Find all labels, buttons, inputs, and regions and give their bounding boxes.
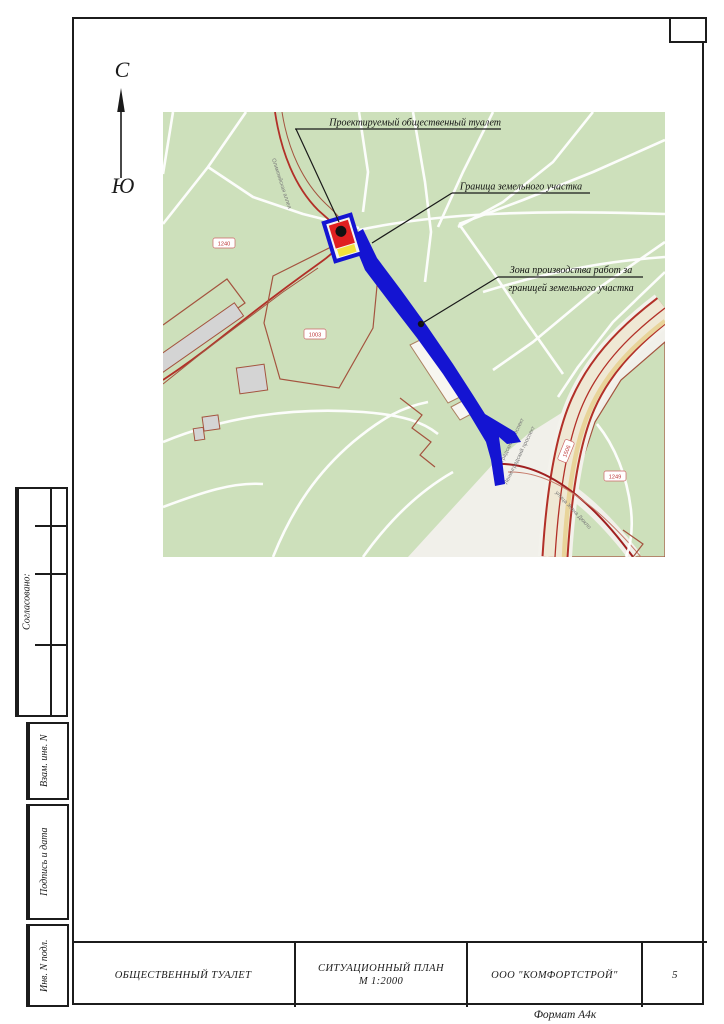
title-sheet-number: 5: [643, 943, 707, 1007]
sidebar-label-inv: Инв. N подл.: [28, 926, 59, 1005]
title-doc: СИТУАЦИОННЫЙ ПЛАН М 1:2000: [296, 943, 468, 1007]
svg-text:1003: 1003: [309, 333, 321, 339]
svg-text:1240: 1240: [218, 242, 230, 248]
north-arrow-icon: [105, 88, 137, 180]
parcel-label-1240: 1240: [213, 238, 235, 248]
sidebar-label-podpis: Подпись и дата: [28, 806, 59, 918]
sidebar-label-vzam: Взам. инв. N: [28, 724, 59, 798]
parcel-label-1003: 1003: [304, 329, 326, 339]
title-company: ООО "КОМФОРТСТРОЙ": [468, 943, 643, 1007]
sidebar-block-vzam: Взам. инв. N: [26, 722, 69, 800]
annotation-work-zone-1: Зона производства работ за: [510, 265, 632, 276]
sidebar-label-agreed: Согласовано:: [17, 489, 35, 715]
corner-box: [669, 17, 707, 43]
title-doc-scale: М 1:2000: [359, 975, 403, 988]
svg-text:1249: 1249: [609, 475, 621, 481]
sidebar-agreed-grid: [35, 489, 66, 715]
title-block: ОБЩЕСТВЕННЫЙ ТУАЛЕТ СИТУАЦИОННЫЙ ПЛАН М …: [72, 941, 707, 1007]
format-label: Формат А4к: [505, 1009, 625, 1021]
annotation-boundary: Граница земельного участка: [459, 182, 582, 193]
annotation-toilet: Проектируемый общественный туалет: [328, 118, 501, 129]
sidebar-block-podpis: Подпись и дата: [26, 804, 69, 920]
annotation-work-zone-2: границей земельного участка: [508, 283, 633, 294]
south-label: Ю: [103, 173, 143, 199]
situational-map: Олимпийская аллея Ленинградский проспект…: [163, 112, 665, 557]
north-label: С: [104, 57, 140, 83]
title-object: ОБЩЕСТВЕННЫЙ ТУАЛЕТ: [72, 943, 296, 1007]
sidebar-block-agreed: Согласовано:: [15, 487, 68, 717]
parcel-label-1249: 1249: [604, 471, 626, 481]
drawing-sheet: С Ю: [0, 0, 724, 1024]
sidebar-block-inv: Инв. N подл.: [26, 924, 69, 1007]
title-doc-name: СИТУАЦИОННЫЙ ПЛАН: [318, 962, 444, 975]
